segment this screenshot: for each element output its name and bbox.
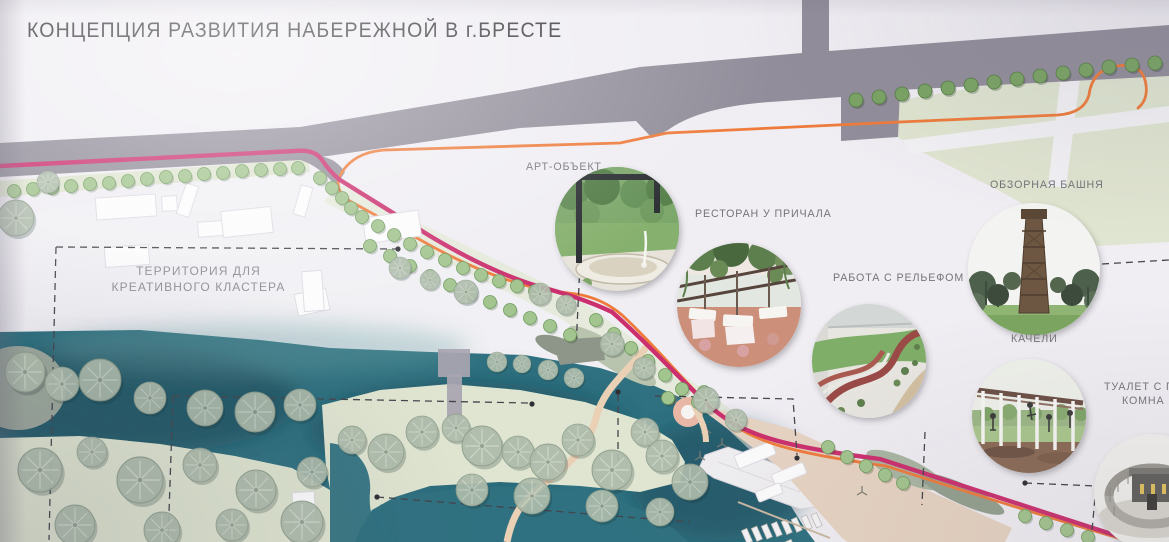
callout-label-terrain-work: РАБОТА С РЕЛЬЕФОМ — [833, 272, 964, 284]
callout-label-observation-tower: ОБЗОРНАЯ БАШНЯ — [990, 179, 1104, 191]
callout-photo-terrain-work — [812, 304, 926, 418]
board-title: КОНЦЕПЦИЯ РАЗВИТИЯ НАБЕРЕЖНОЙ В г.БРЕСТЕ — [27, 19, 562, 43]
callout-label-art-object: АРТ-ОБЪЕКТ — [526, 161, 602, 173]
callout-photo-art-object — [555, 167, 680, 291]
callout-label-toilet-line2: КОМНА — [1122, 395, 1164, 407]
territory-label-line2: КРЕАТИВНОГО КЛАСТЕРА — [96, 280, 301, 296]
art-object-site — [552, 337, 605, 365]
territory-label-line1: ТЕРРИТОРИЯ ДЛЯ — [96, 264, 301, 280]
concept-board: КОНЦЕПЦИЯ РАЗВИТИЯ НАБЕРЕЖНОЙ В г.БРЕСТЕ… — [0, 0, 1169, 542]
callout-label-toilet-line1: ТУАЛЕТ С ПЕЛ — [1104, 381, 1169, 393]
callout-label-swings: КАЧЕЛИ — [1011, 333, 1058, 345]
territory-label: ТЕРРИТОРИЯ ДЛЯ КРЕАТИВНОГО КЛАСТЕРА — [96, 264, 301, 295]
callout-label-restaurant: РЕСТОРАН У ПРИЧАЛА — [695, 208, 832, 220]
